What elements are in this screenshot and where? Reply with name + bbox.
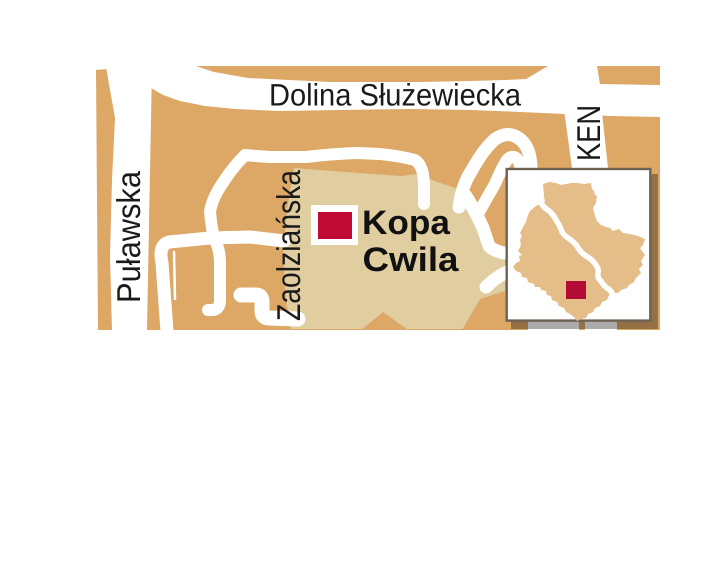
svg-text:Cwila: Cwila: [363, 241, 460, 279]
svg-text:Puławska: Puławska: [110, 170, 147, 303]
svg-text:Zaolziańska: Zaolziańska: [270, 169, 307, 321]
svg-text:KEN: KEN: [570, 105, 607, 161]
svg-text:Kopa: Kopa: [362, 204, 451, 242]
svg-text:Dolina Służewiecka: Dolina Służewiecka: [269, 78, 522, 113]
